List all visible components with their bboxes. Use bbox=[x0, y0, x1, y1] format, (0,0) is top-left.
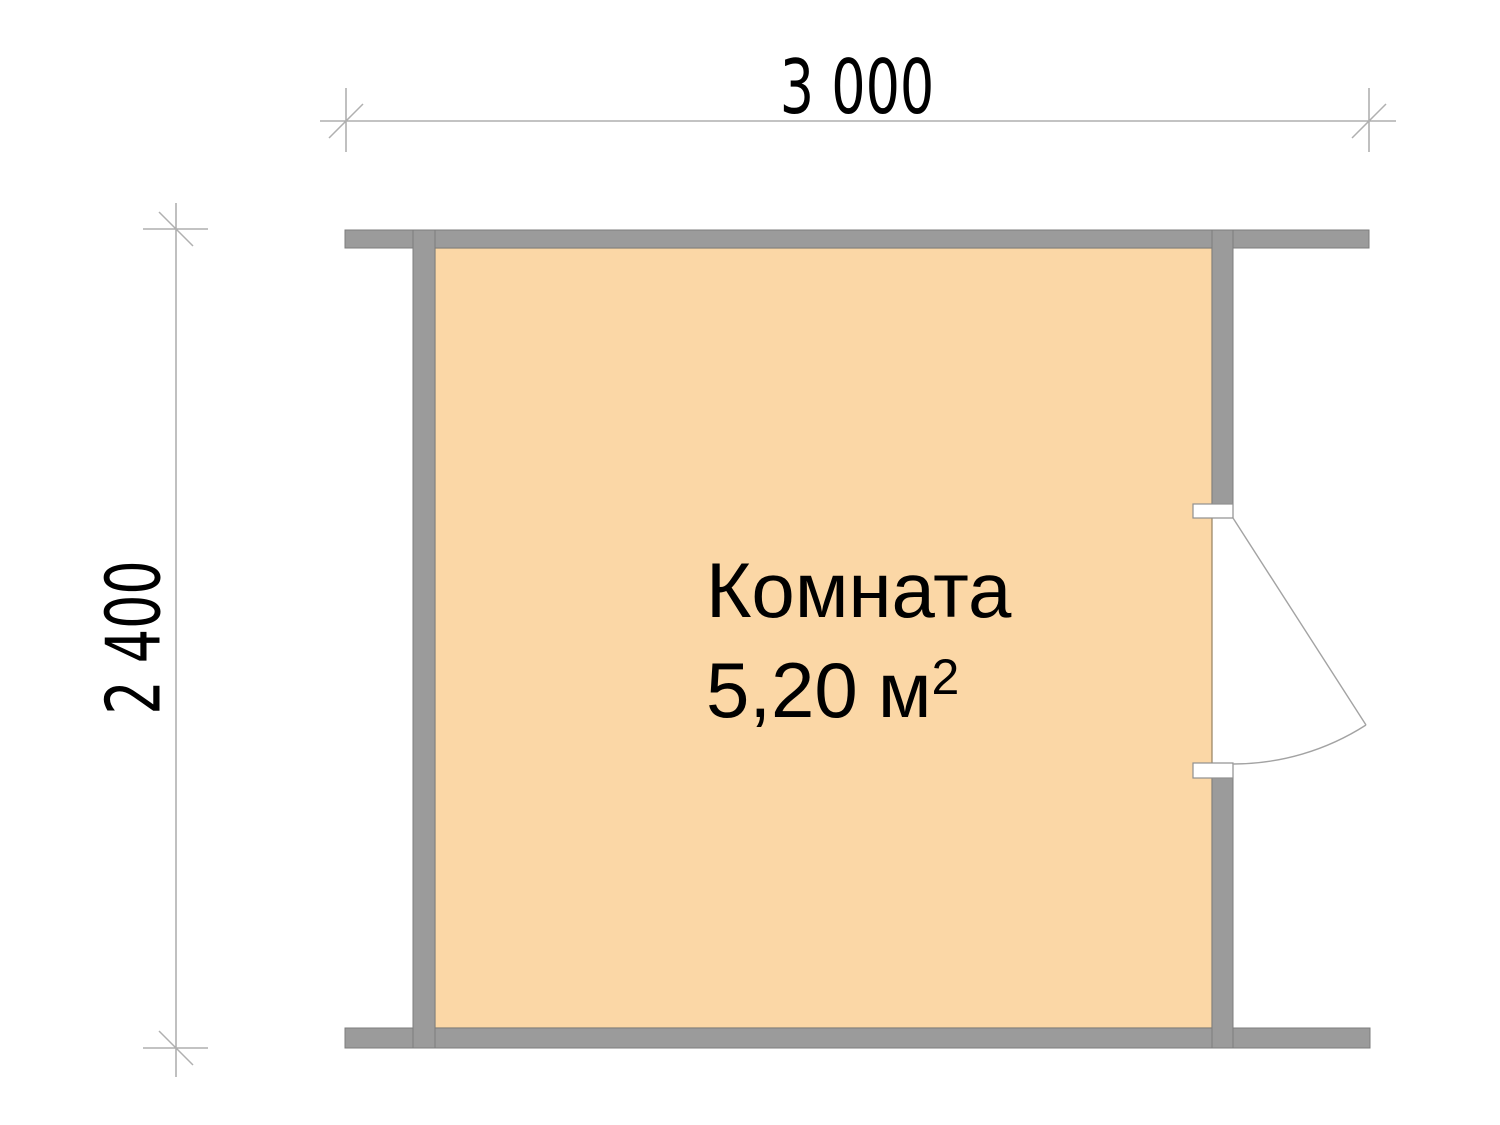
wall-right-upper bbox=[1212, 230, 1233, 505]
door-leaf-line bbox=[1233, 518, 1366, 725]
floor-plan-canvas: 3 000 2 400 Комната 5,20м2 bbox=[0, 0, 1500, 1125]
wall-left bbox=[413, 230, 435, 1048]
dimension-height-label: 2 400 bbox=[97, 458, 172, 818]
door-swing-arc bbox=[1233, 725, 1366, 764]
room-area-value: 5,20 bbox=[706, 646, 858, 734]
door-jamb-upper bbox=[1193, 504, 1233, 518]
wall-right-lower bbox=[1212, 777, 1233, 1048]
door-jamb-lower bbox=[1193, 763, 1233, 778]
dimension-width-label: 3 000 bbox=[677, 50, 1037, 125]
room-area-unit: м bbox=[878, 646, 932, 734]
room-floor bbox=[435, 248, 1212, 1028]
room-area-superscript: 2 bbox=[931, 649, 959, 705]
door-swing bbox=[1233, 518, 1366, 764]
room-area-label: 5,20м2 bbox=[706, 651, 959, 729]
room-name-label: Комната bbox=[706, 551, 1011, 629]
